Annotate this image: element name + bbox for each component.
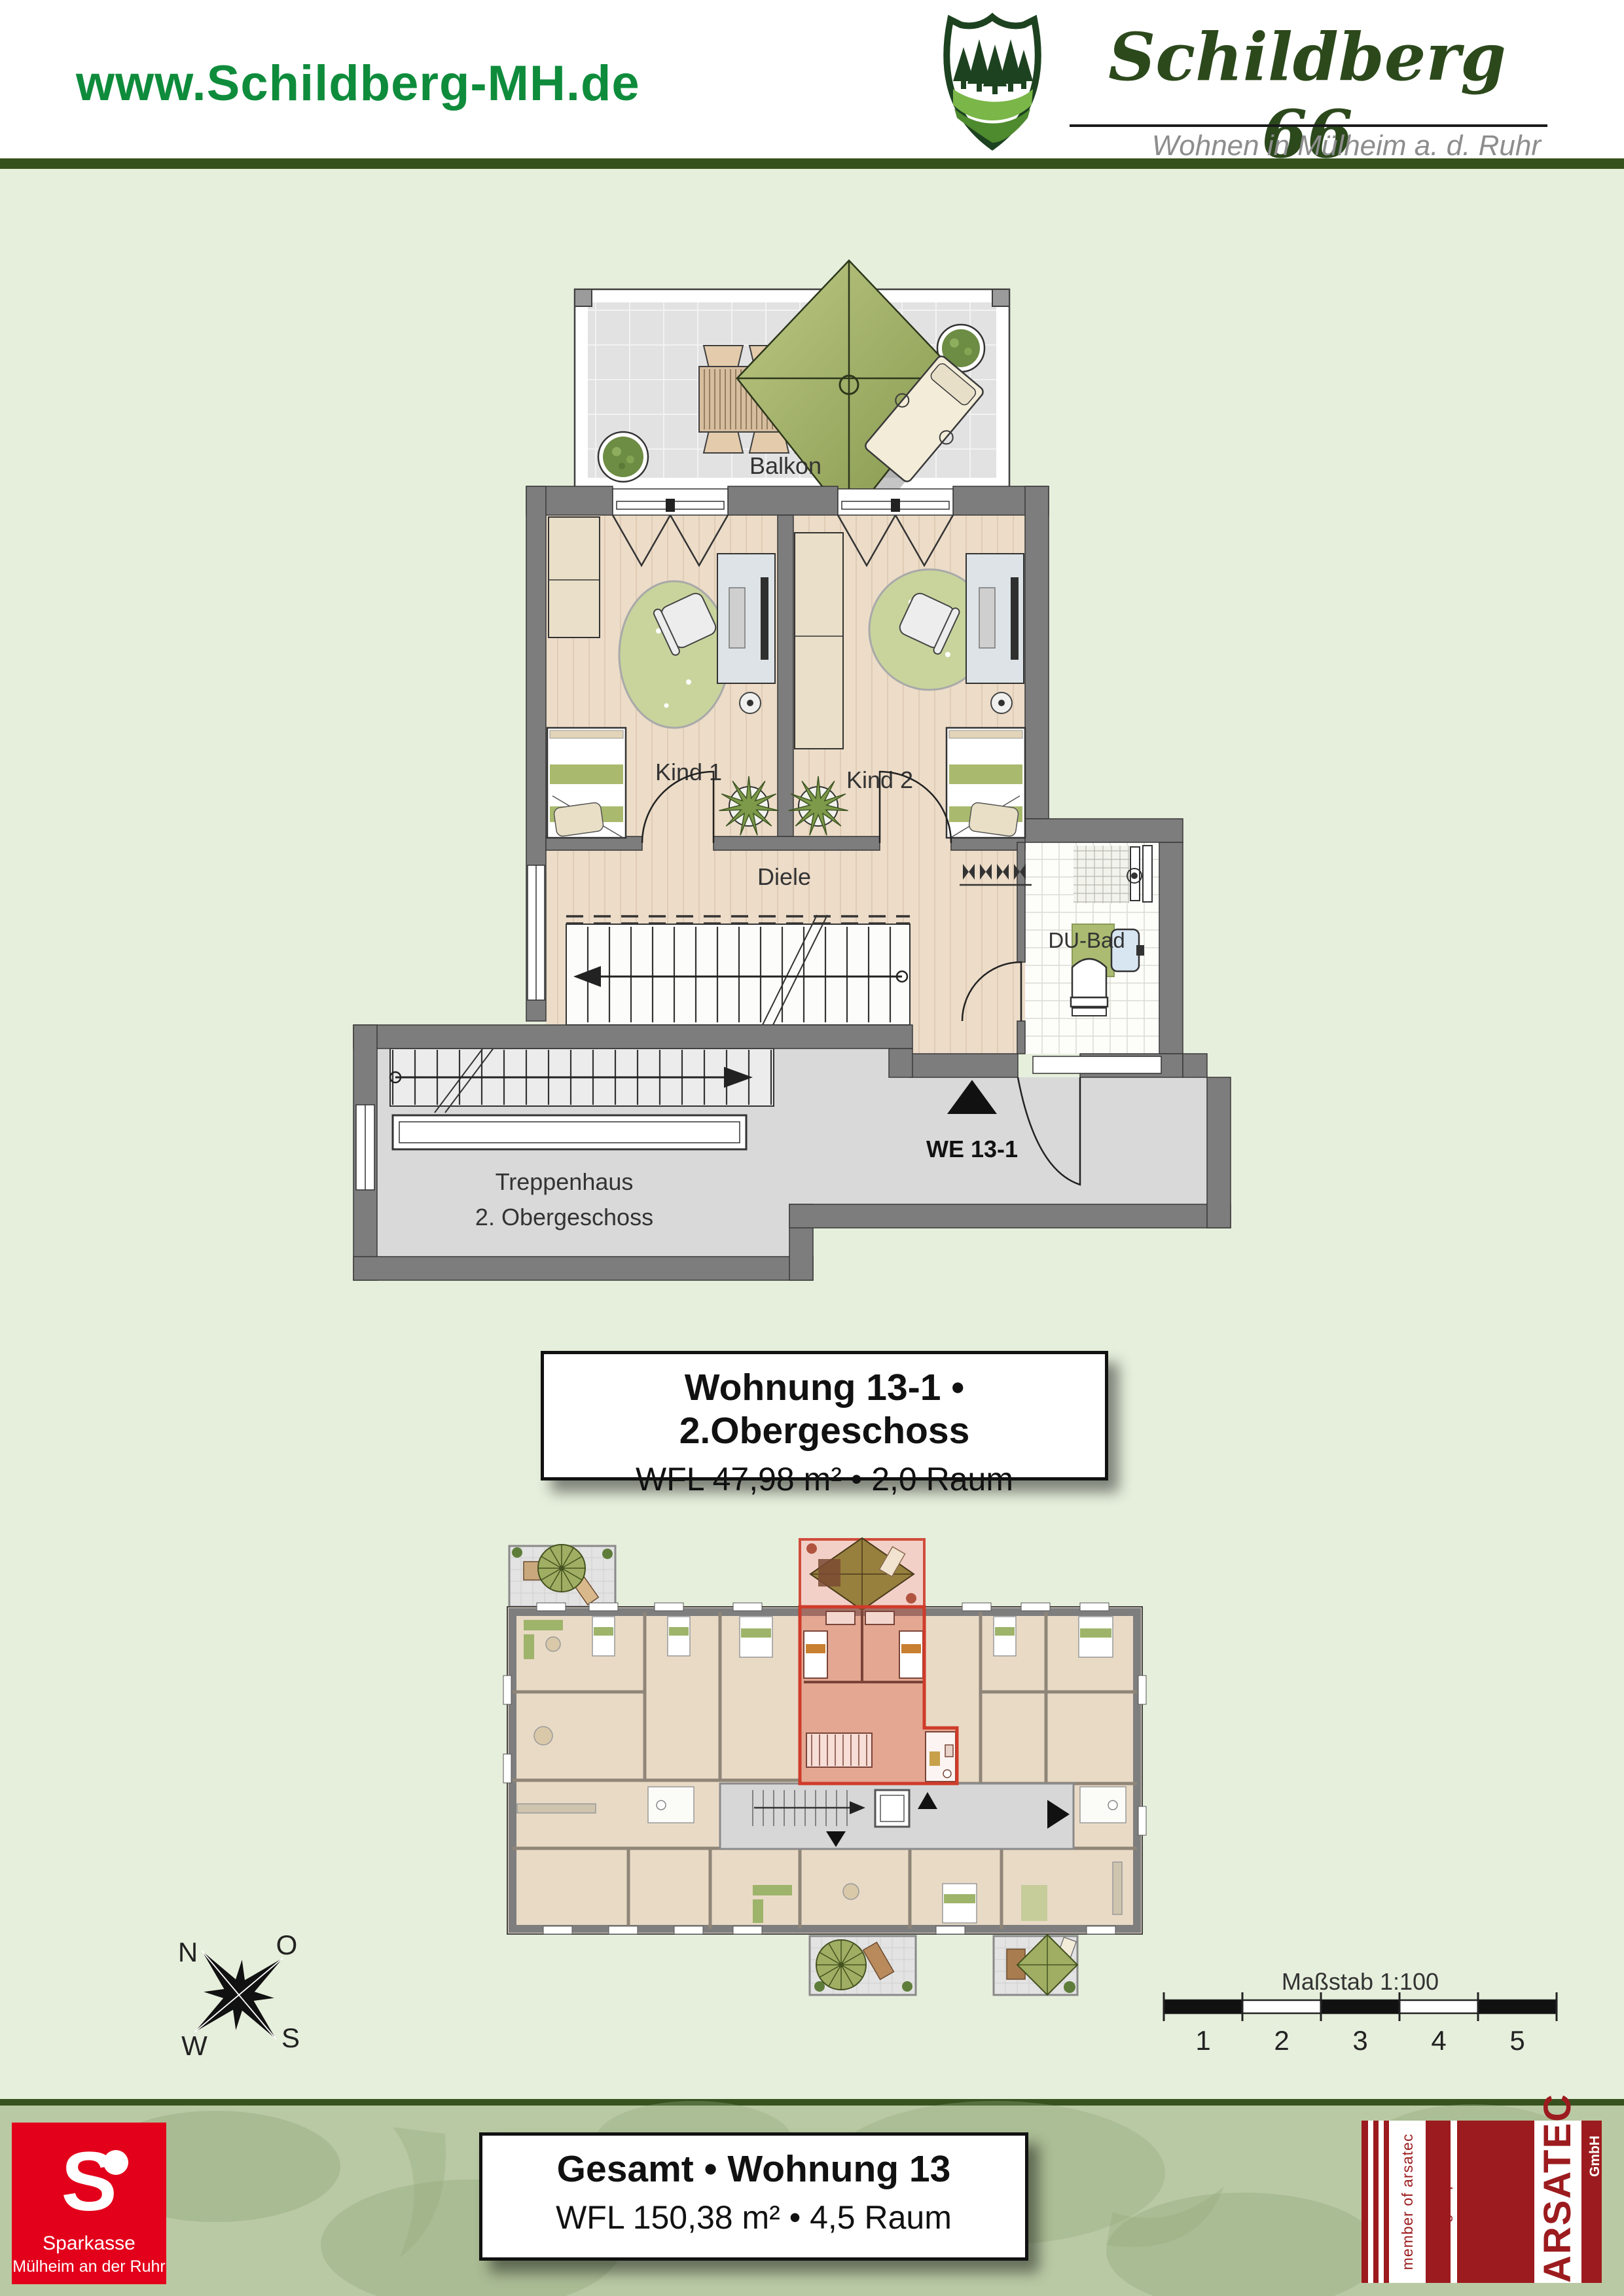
bath-label: DU-Bad xyxy=(1048,928,1125,952)
compass-rose-icon: N O S W xyxy=(158,1914,320,2076)
keyboard-icon xyxy=(729,588,745,648)
sparkasse-logo: S Sparkasse Mülheim an der Ruhr xyxy=(12,2123,166,2284)
arsatec-gmbh: GmbH xyxy=(1587,2121,1604,2177)
sparkasse-city: Mülheim an der Ruhr xyxy=(12,2257,166,2276)
garden-terrace xyxy=(994,1935,1077,1995)
scale-tick-4: 4 xyxy=(1431,2025,1446,2056)
scale-title: Maßstab 1:100 xyxy=(1282,1968,1439,1995)
stairwell-label-2: 2. Obergeschoss xyxy=(475,1204,653,1230)
plant-pot-icon xyxy=(598,432,648,482)
brand-underline xyxy=(1070,124,1547,127)
garden-terrace xyxy=(810,1936,916,1995)
bathroom: DU-Bad xyxy=(1025,842,1159,1054)
sparkasse-dot-icon xyxy=(103,2150,128,2175)
stair-landing xyxy=(393,1115,746,1149)
main-floorplan: Balkon xyxy=(353,260,1231,1280)
total-info-box: Gesamt • Wohnung 13 WFL 150,38 m² • 4,5 … xyxy=(479,2132,1028,2261)
compass-w: W xyxy=(181,2030,208,2061)
website-url: www.Schildberg-MH.de xyxy=(76,55,640,112)
brand-shield-icon xyxy=(927,8,1058,152)
scale-tick-1: 1 xyxy=(1195,2025,1210,2056)
shower-head-icon xyxy=(1131,872,1138,879)
total-info-title: Gesamt • Wohnung 13 xyxy=(482,2147,1025,2191)
monitor-icon xyxy=(761,577,768,660)
sparkasse-s-icon: S xyxy=(12,2140,166,2225)
threshold xyxy=(1033,1056,1161,1073)
roof-terrace xyxy=(509,1545,615,1607)
balcony-label: Balkon xyxy=(749,452,821,479)
overview-stair-hall xyxy=(720,1784,1074,1849)
overview-floorplan xyxy=(503,1538,1146,1995)
monitor-icon xyxy=(1011,577,1019,660)
scale-tick-2: 2 xyxy=(1274,2025,1289,2056)
brand-tagline: Wohnen in Mülheim a. d. Ruhr xyxy=(1067,130,1541,162)
hall-label: Diele xyxy=(757,863,811,890)
scale-tick-5: 5 xyxy=(1509,2025,1525,2056)
communal-stairs xyxy=(390,1045,774,1149)
scale-bar: Maßstab 1:100 1 2 3 4 5 xyxy=(1164,1968,1557,2056)
compass-n: N xyxy=(178,1937,198,1967)
floorplan-page-graphics: Balkon xyxy=(0,0,1624,2296)
unit-info-subtitle: WFL 47,98 m² • 2,0 Raum xyxy=(544,1460,1105,1498)
wardrobe xyxy=(549,517,600,637)
keyboard-icon xyxy=(979,588,995,648)
compass-s: S xyxy=(281,2022,300,2053)
bed xyxy=(547,728,626,838)
total-info-subtitle: WFL 150,38 m² • 4,5 Raum xyxy=(482,2198,1025,2236)
stairwell-label-1: Treppenhaus xyxy=(496,1168,634,1195)
sparkasse-name: Sparkasse xyxy=(12,2233,166,2255)
arsatec-member-text: member of arsatec group xyxy=(1389,2121,1426,2283)
unit-info-title: Wohnung 13-1 • 2.Obergeschoss xyxy=(544,1366,1105,1452)
arsatec-stripe xyxy=(1368,2121,1373,2283)
bed xyxy=(947,728,1025,838)
internal-stairs xyxy=(566,915,910,1037)
unit-info-box: Wohnung 13-1 • 2.Obergeschoss WFL 47,98 … xyxy=(541,1351,1108,1480)
compass-o: O xyxy=(276,1929,298,1960)
radiator xyxy=(1143,846,1152,902)
arsatec-stripe xyxy=(1379,2121,1384,2283)
scale-tick-3: 3 xyxy=(1352,2025,1367,2056)
unit-label: WE 13-1 xyxy=(926,1136,1018,1162)
wardrobe xyxy=(795,533,843,749)
toilet-icon xyxy=(1071,959,1108,1016)
arsatec-logo: member of arsatec group ARSATEC GmbH xyxy=(1362,2121,1602,2283)
arsatec-name: ARSATEC xyxy=(1534,2121,1581,2283)
